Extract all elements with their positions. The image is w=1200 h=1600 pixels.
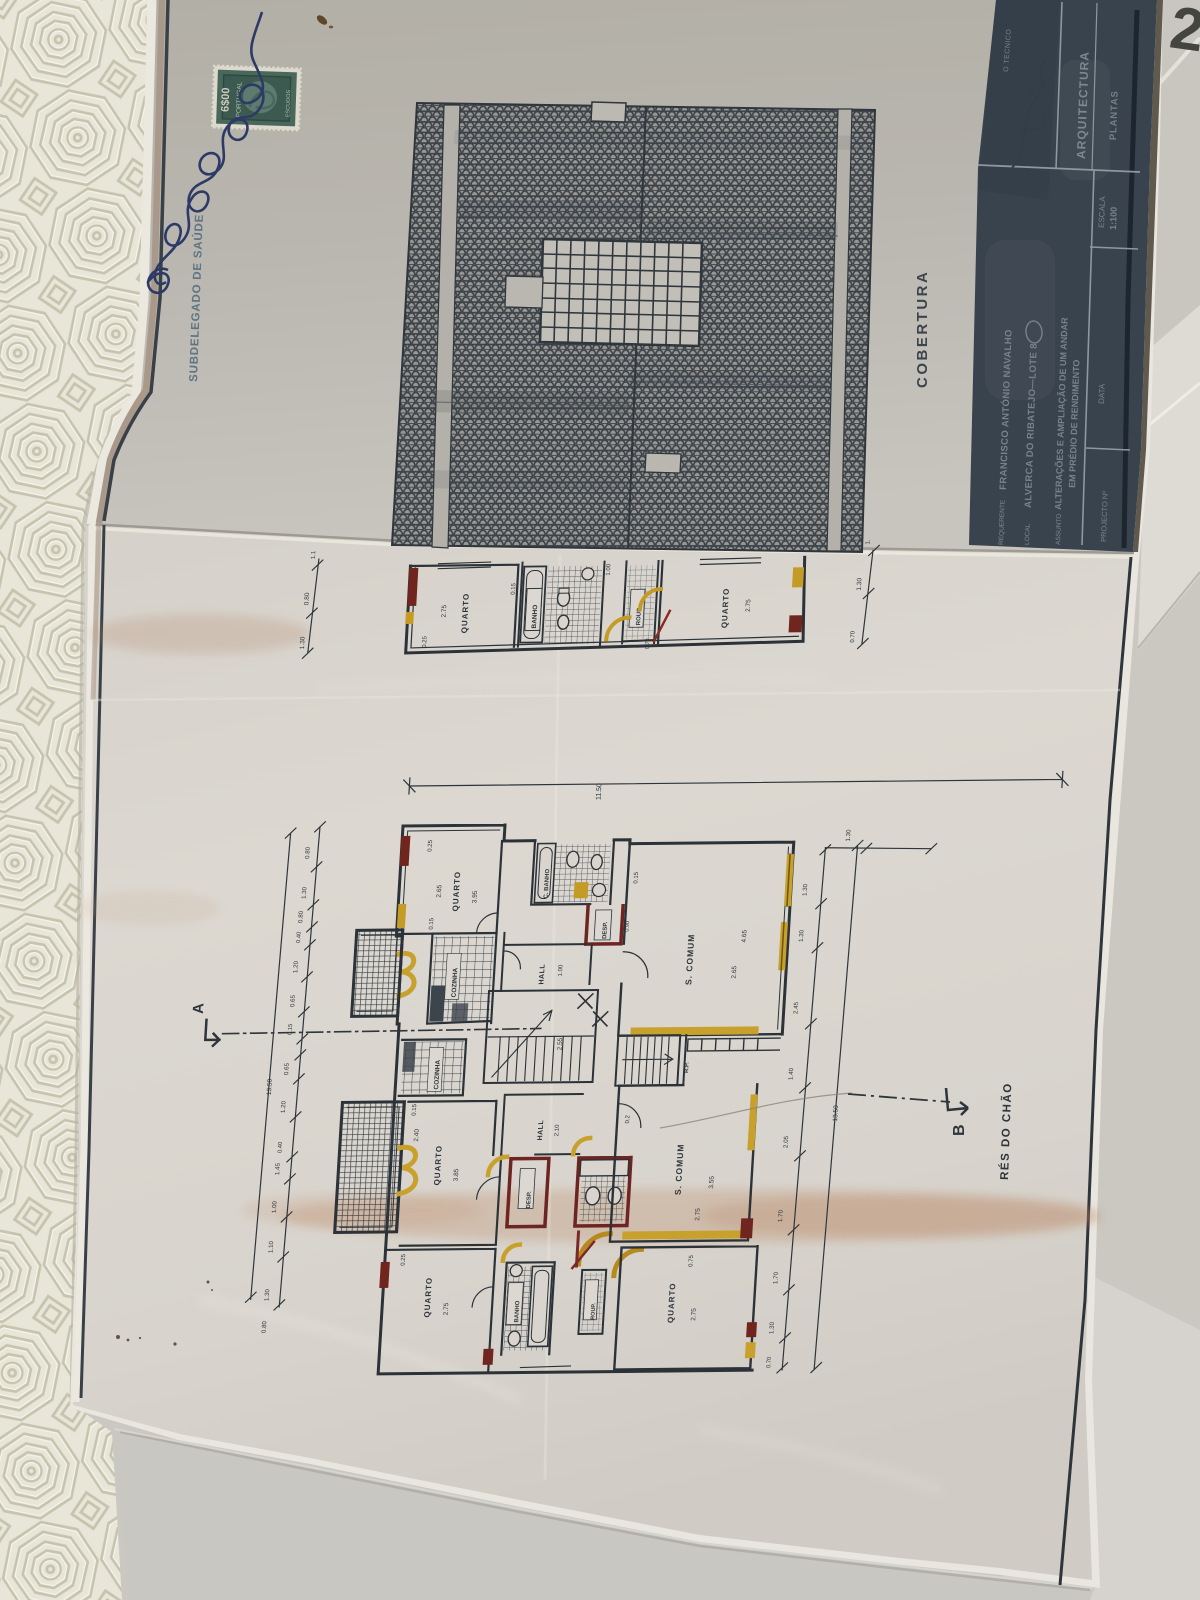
svg-text:3.95: 3.95 xyxy=(471,890,479,903)
svg-text:2.75: 2.75 xyxy=(441,604,449,617)
svg-text:B: B xyxy=(951,1124,968,1136)
svg-text:1.30: 1.30 xyxy=(768,1321,776,1334)
svg-text:0.80: 0.80 xyxy=(297,910,305,923)
svg-text:0.70: 0.70 xyxy=(766,1357,773,1368)
svg-text:LOCAL: LOCAL xyxy=(1024,523,1032,545)
svg-text:13.50: 13.50 xyxy=(832,1105,840,1122)
svg-text:0.65: 0.65 xyxy=(283,1062,291,1075)
svg-text:2.75: 2.75 xyxy=(694,1208,702,1221)
svg-text:1.20: 1.20 xyxy=(292,960,300,973)
svg-text:ROUP.: ROUP. xyxy=(590,1303,597,1320)
svg-text:2.75: 2.75 xyxy=(443,1302,451,1315)
svg-text:0.25: 0.25 xyxy=(422,635,429,647)
svg-text:2.75: 2.75 xyxy=(745,599,753,612)
svg-text:2.55: 2.55 xyxy=(556,1037,564,1050)
svg-text:2.40: 2.40 xyxy=(413,1129,421,1142)
svg-text:ESCALA: ESCALA xyxy=(1097,196,1107,229)
svg-text:0.2: 0.2 xyxy=(625,1115,632,1124)
svg-text:1.30: 1.30 xyxy=(301,886,309,899)
svg-text:1.30: 1.30 xyxy=(845,829,853,842)
svg-text:1.: 1. xyxy=(865,539,871,544)
svg-text:4.65: 4.65 xyxy=(741,929,749,942)
svg-text:1.40: 1.40 xyxy=(788,1067,796,1080)
svg-text:2.10: 2.10 xyxy=(554,1124,561,1136)
svg-text:0.80: 0.80 xyxy=(261,1320,269,1333)
svg-text:ESCUDOS: ESCUDOS xyxy=(285,90,292,118)
svg-text:1.1: 1.1 xyxy=(311,550,317,559)
svg-text:0.25: 0.25 xyxy=(427,839,434,851)
svg-text:0.70: 0.70 xyxy=(850,630,857,642)
svg-text:1.00: 1.00 xyxy=(606,563,613,575)
svg-text:13.50: 13.50 xyxy=(266,1079,274,1096)
svg-text:0.15: 0.15 xyxy=(412,1103,419,1115)
svg-text:2.65: 2.65 xyxy=(731,966,739,979)
svg-text:ASSUNTO: ASSUNTO xyxy=(1055,514,1063,546)
svg-text:1.30: 1.30 xyxy=(802,883,810,896)
svg-text:0.80: 0.80 xyxy=(304,846,312,859)
svg-text:1.45: 1.45 xyxy=(274,1162,282,1175)
svg-text:HALL: HALL xyxy=(538,964,546,985)
svg-text:0.65: 0.65 xyxy=(289,994,297,1007)
svg-text:COBERTURA: COBERTURA xyxy=(914,270,931,388)
svg-text:0.75: 0.75 xyxy=(688,1254,695,1266)
svg-text:1.70: 1.70 xyxy=(772,1271,780,1284)
svg-text:2.05: 2.05 xyxy=(782,1135,790,1148)
svg-text:0.40: 0.40 xyxy=(296,932,303,943)
svg-text:BANHO: BANHO xyxy=(531,605,539,629)
svg-text:0.15: 0.15 xyxy=(429,917,436,929)
svg-text:11.50: 11.50 xyxy=(595,783,603,800)
svg-text:2.75: 2.75 xyxy=(690,1308,698,1321)
svg-text:DESP.: DESP. xyxy=(602,921,609,939)
svg-text:1.00: 1.00 xyxy=(558,964,565,976)
svg-text:A: A xyxy=(190,1003,208,1014)
svg-text:0.15: 0.15 xyxy=(511,582,518,594)
svg-text:1:100: 1:100 xyxy=(1108,207,1119,230)
svg-text:3.55: 3.55 xyxy=(708,1176,716,1189)
svg-text:0.70: 0.70 xyxy=(645,638,652,649)
svg-text:1.70: 1.70 xyxy=(777,1209,785,1222)
svg-text:HALL: HALL xyxy=(537,1120,545,1141)
svg-text:DESP.: DESP. xyxy=(526,1191,533,1209)
svg-text:DATA: DATA xyxy=(1097,383,1107,404)
svg-text:1.10: 1.10 xyxy=(267,1240,275,1253)
svg-text:6$00: 6$00 xyxy=(219,87,232,112)
svg-text:1.30: 1.30 xyxy=(798,929,806,942)
svg-text:PLANTAS: PLANTAS xyxy=(1108,90,1121,140)
svg-text:PROJECTO Nº: PROJECTO Nº xyxy=(1099,491,1110,542)
svg-text:1.30: 1.30 xyxy=(264,1288,272,1301)
svg-text:0.15: 0.15 xyxy=(633,871,640,883)
svg-text:0.25: 0.25 xyxy=(401,1253,408,1265)
svg-text:2.65: 2.65 xyxy=(436,885,444,898)
svg-text:1.30: 1.30 xyxy=(856,578,864,591)
svg-text:1.20: 1.20 xyxy=(280,1100,288,1113)
svg-text:0.80: 0.80 xyxy=(303,592,311,605)
svg-text:0.40: 0.40 xyxy=(277,1142,284,1153)
svg-text:3.85: 3.85 xyxy=(453,1168,461,1181)
svg-text:1.30: 1.30 xyxy=(299,636,307,649)
svg-text:1.00: 1.00 xyxy=(271,1200,279,1213)
svg-text:2.45: 2.45 xyxy=(792,1001,800,1014)
